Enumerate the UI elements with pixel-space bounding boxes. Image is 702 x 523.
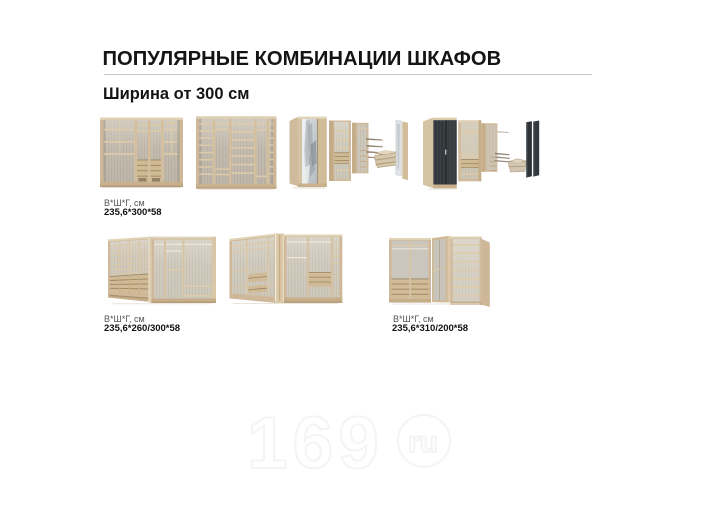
svg-text:ru: ru (408, 426, 438, 459)
svg-text:169: 169 (247, 403, 384, 484)
